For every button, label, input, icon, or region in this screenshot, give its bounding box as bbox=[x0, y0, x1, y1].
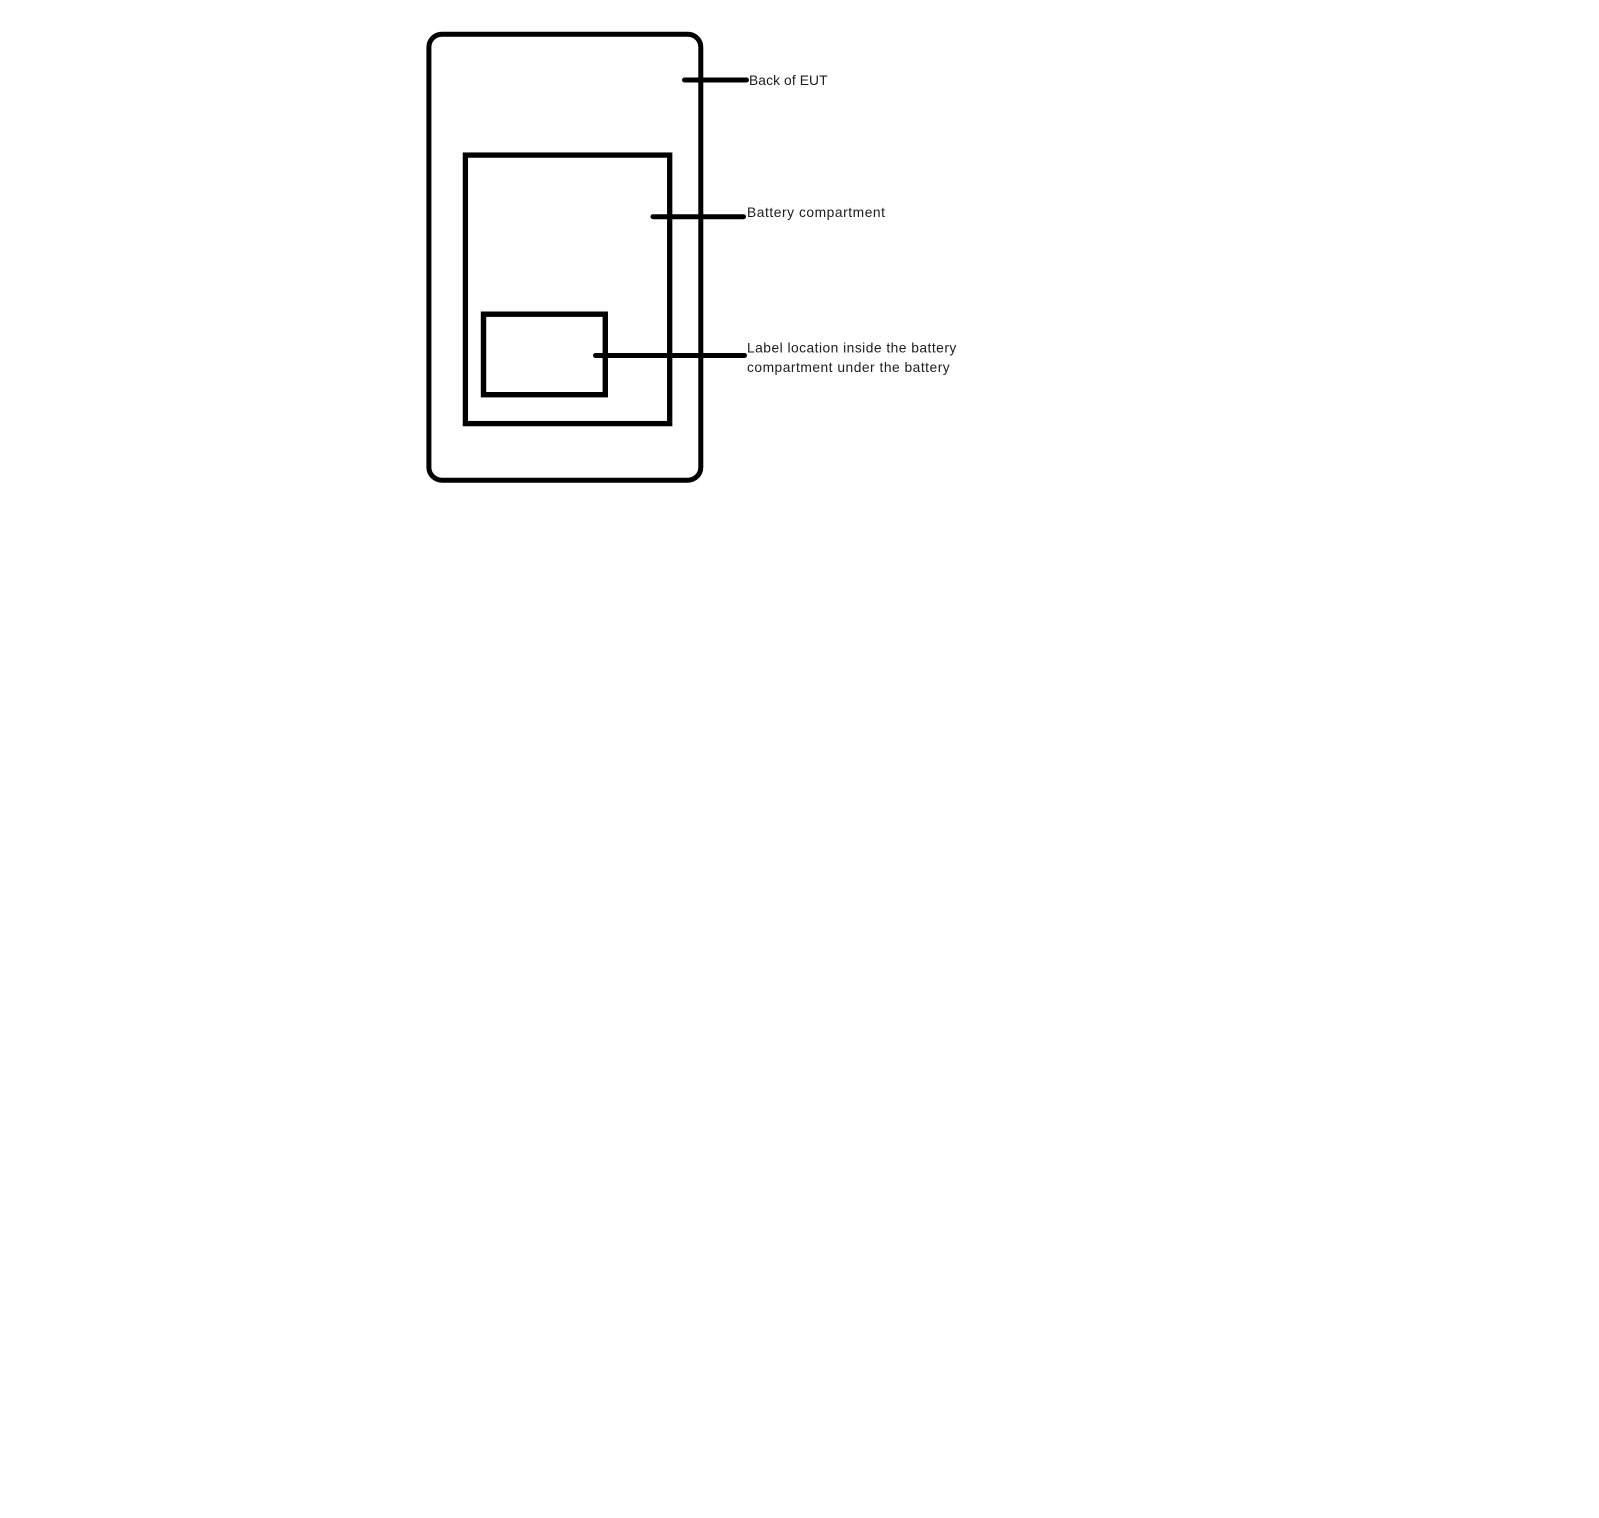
svg-text:compartment under the battery: compartment under the battery bbox=[747, 360, 950, 375]
svg-text:Battery compartment: Battery compartment bbox=[747, 205, 885, 220]
svg-text:Label location inside the batt: Label location inside the battery bbox=[747, 340, 956, 355]
svg-text:Back of EUT: Back of EUT bbox=[749, 73, 828, 88]
